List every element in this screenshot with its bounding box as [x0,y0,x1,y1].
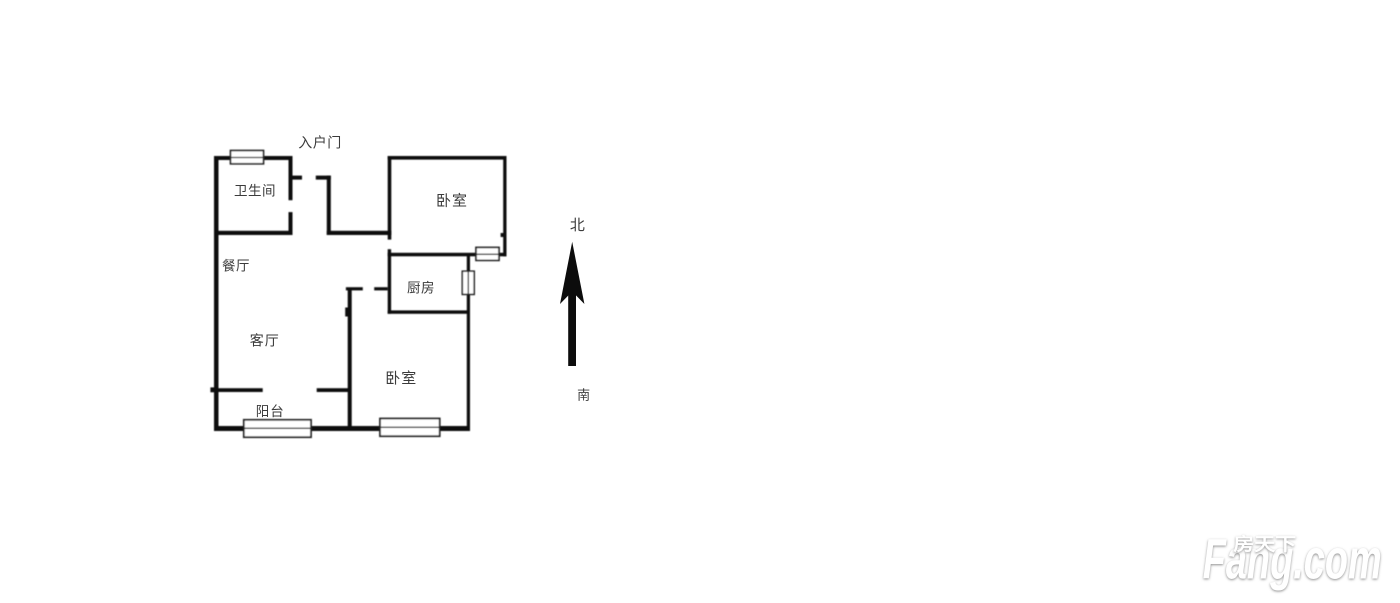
svg-text:卧室: 卧室 [436,193,468,210]
svg-text:客厅: 客厅 [250,332,280,348]
svg-text:南: 南 [577,388,590,403]
svg-text:入户门: 入户门 [298,135,342,151]
svg-text:北: 北 [570,217,585,234]
svg-text:房天下: 房天下 [1233,534,1296,555]
svg-text:餐厅: 餐厅 [222,259,250,274]
svg-text:阳台: 阳台 [256,404,285,419]
svg-text:卫生间: 卫生间 [234,184,276,199]
svg-text:卧室: 卧室 [385,370,417,387]
svg-text:厨房: 厨房 [407,280,435,295]
